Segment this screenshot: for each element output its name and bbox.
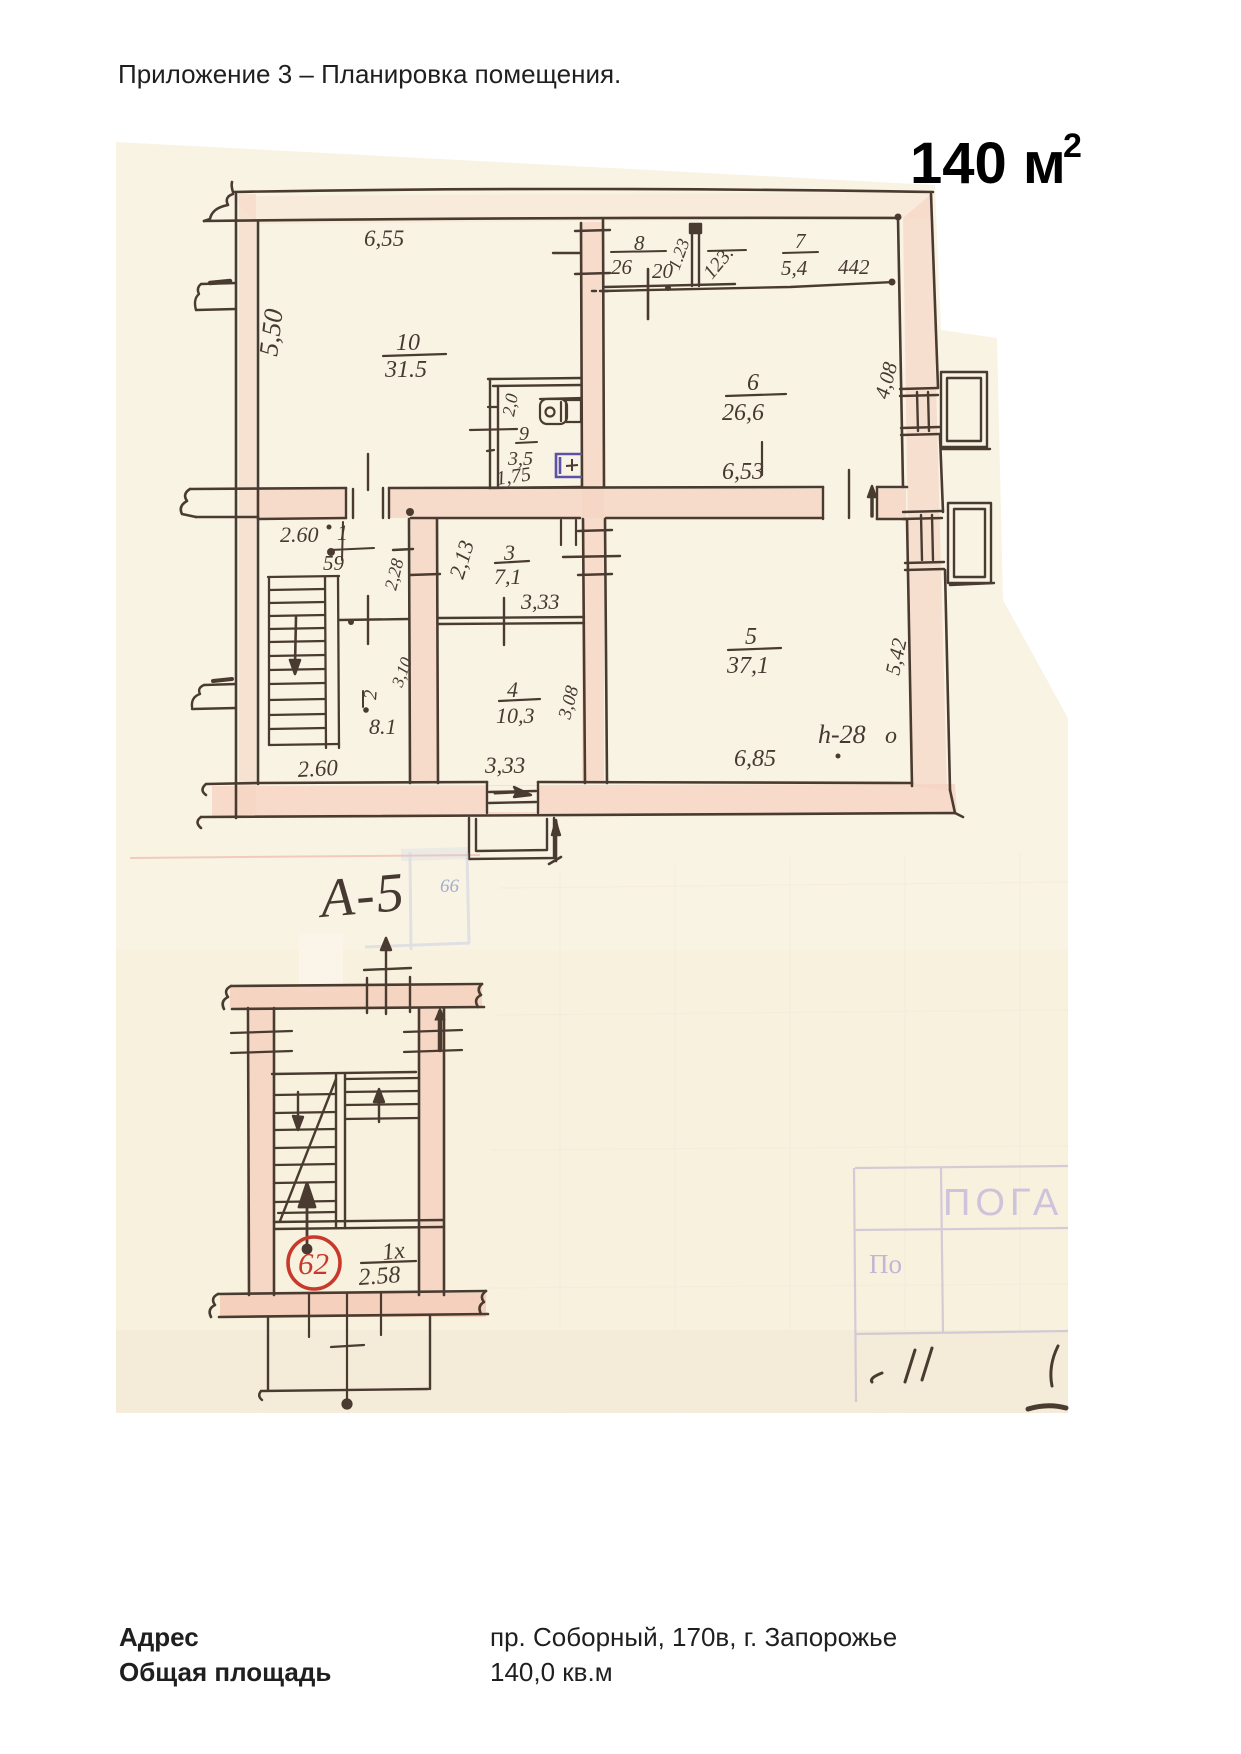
svg-text:8.1: 8.1 <box>369 714 397 739</box>
svg-text:3,33: 3,33 <box>484 753 525 778</box>
svg-text:2.60: 2.60 <box>297 755 339 782</box>
svg-text:59: 59 <box>323 551 345 575</box>
svg-text:6: 6 <box>747 370 759 396</box>
svg-text:А-5: А-5 <box>314 861 408 930</box>
svg-text:26: 26 <box>611 255 633 279</box>
svg-text:5: 5 <box>745 624 757 650</box>
svg-text:пр. Соборный, 170в, г. Запорож: пр. Соборный, 170в, г. Запорожье <box>490 1622 897 1652</box>
svg-text:442: 442 <box>838 255 870 279</box>
svg-text:5,4: 5,4 <box>781 256 808 280</box>
svg-text:140 м: 140 м <box>910 131 1066 196</box>
svg-text:8: 8 <box>634 231 645 255</box>
svg-text:10,3: 10,3 <box>496 703 535 728</box>
svg-text:66: 66 <box>440 876 460 897</box>
svg-text:h-28: h-28 <box>818 720 866 749</box>
svg-text:4: 4 <box>507 677 518 702</box>
svg-text:31.5: 31.5 <box>384 357 427 383</box>
svg-text:6,53: 6,53 <box>722 459 764 485</box>
svg-text:2.58: 2.58 <box>358 1262 402 1291</box>
svg-text:По: По <box>869 1249 902 1279</box>
svg-text:2: 2 <box>1063 127 1082 165</box>
svg-text:1: 1 <box>337 520 348 545</box>
svg-text:140,0 кв.м: 140,0 кв.м <box>490 1657 613 1687</box>
svg-text:6,85: 6,85 <box>734 746 776 772</box>
svg-text:ПОГА: ПОГА <box>943 1182 1063 1224</box>
svg-text:7,1: 7,1 <box>494 564 522 589</box>
svg-text:2.60: 2.60 <box>280 522 319 547</box>
svg-text:2,0: 2,0 <box>498 392 522 418</box>
svg-text:62: 62 <box>298 1246 329 1281</box>
svg-text:3,33: 3,33 <box>520 589 560 614</box>
svg-text:5,50: 5,50 <box>253 307 289 358</box>
svg-text:10: 10 <box>396 330 420 356</box>
svg-text:37,1: 37,1 <box>726 653 769 679</box>
svg-text:26,6: 26,6 <box>722 400 764 426</box>
svg-text:6,55: 6,55 <box>364 226 404 251</box>
svg-text:Адрес: Адрес <box>119 1622 199 1652</box>
svg-text:Приложение 3 – Планировка поме: Приложение 3 – Планировка помещения. <box>118 59 621 89</box>
svg-text:Общая площадь: Общая площадь <box>119 1657 331 1687</box>
svg-text:о: о <box>885 723 897 749</box>
svg-text:7: 7 <box>795 229 807 253</box>
